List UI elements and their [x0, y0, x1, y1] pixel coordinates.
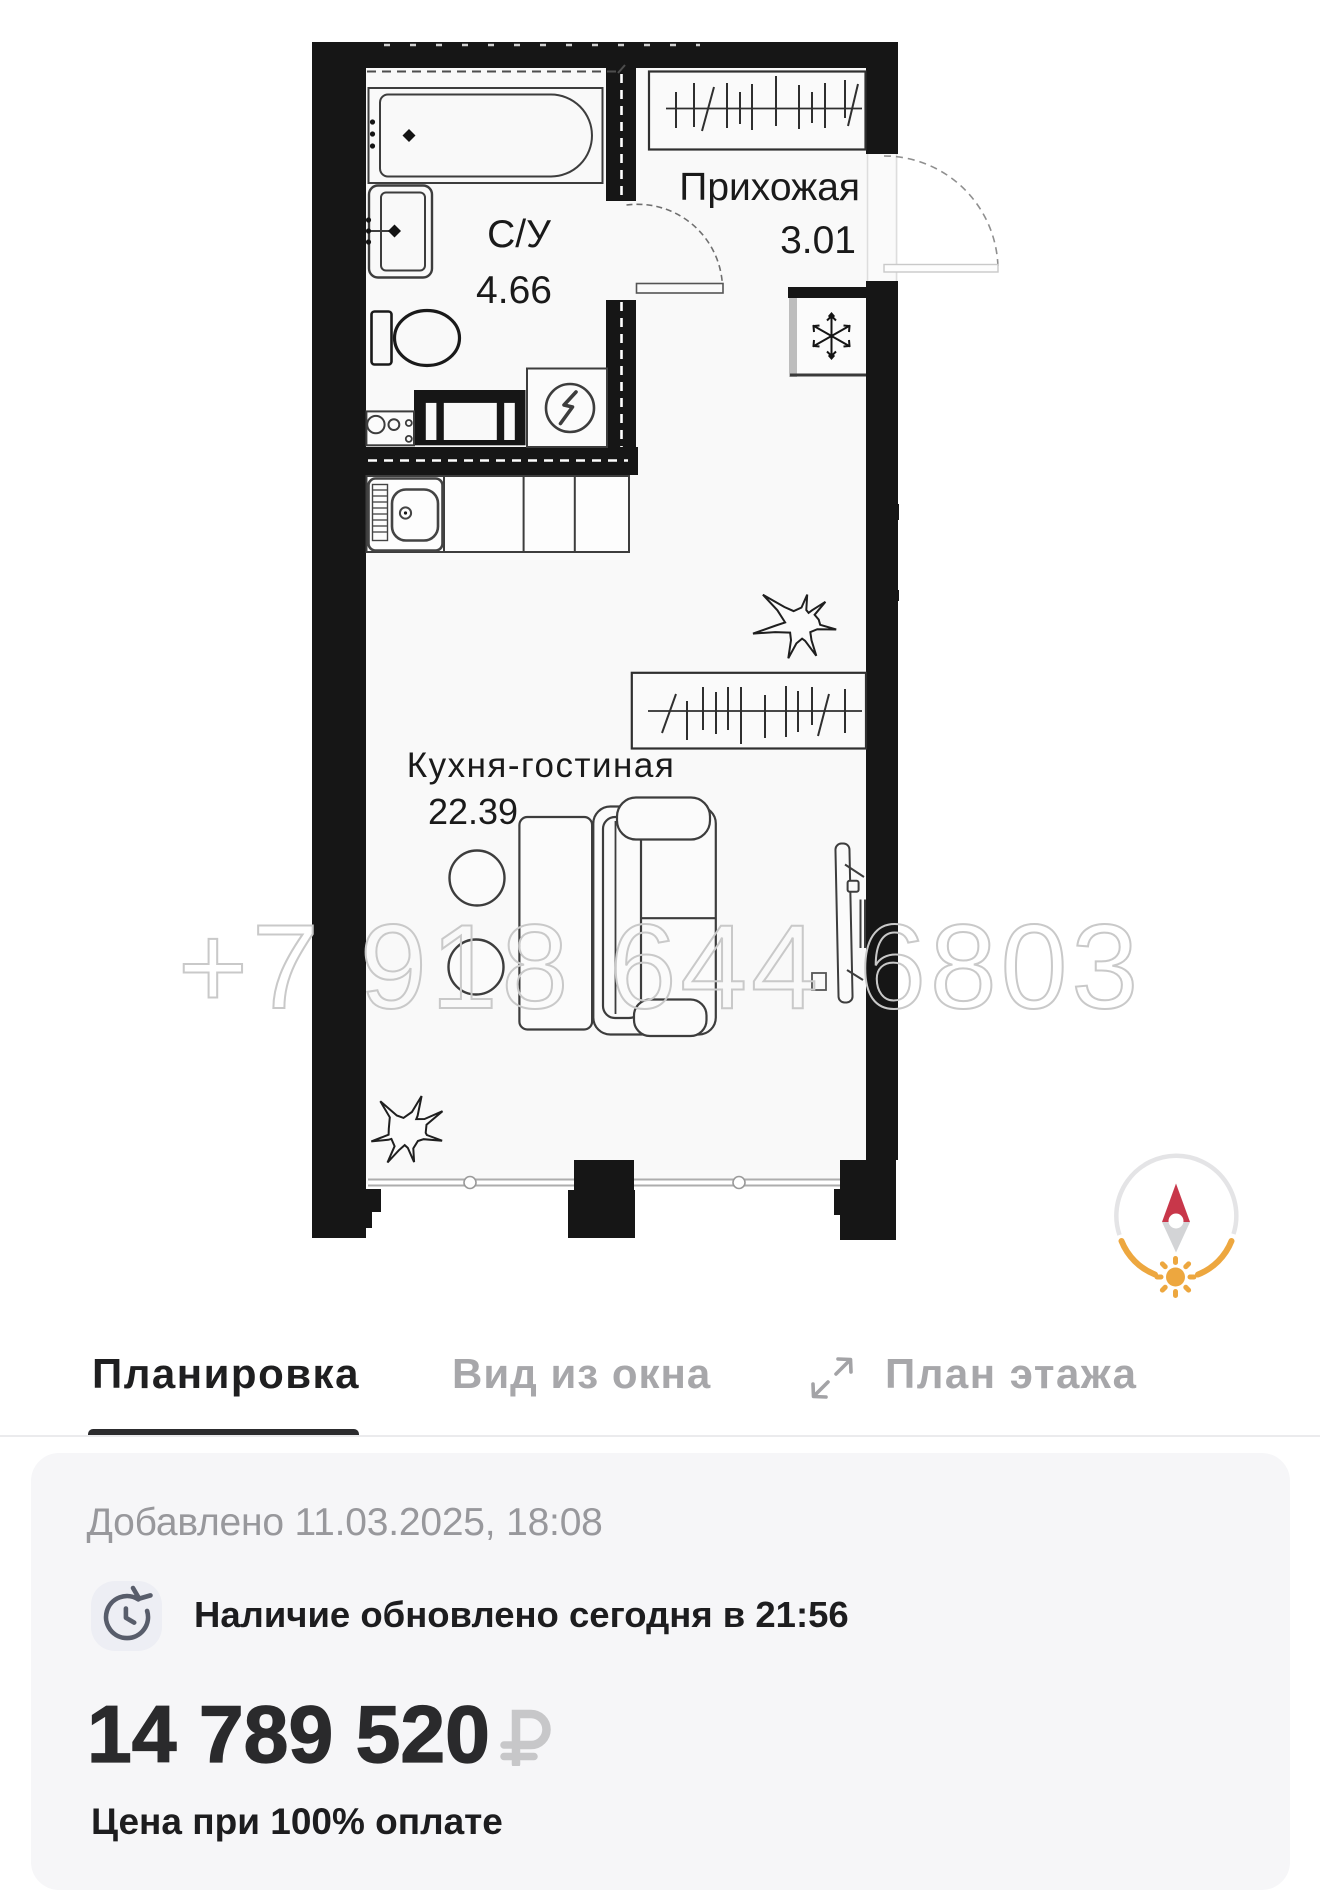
svg-text:Кухня-гостиная: Кухня-гостиная: [407, 746, 676, 785]
svg-text:22.39: 22.39: [428, 791, 518, 832]
svg-text:4.66: 4.66: [476, 269, 552, 312]
svg-text:+7 918 644 6803: +7 918 644 6803: [178, 900, 1142, 1034]
svg-text:С/У: С/У: [487, 213, 551, 256]
svg-text:3.01: 3.01: [780, 219, 856, 262]
svg-text:Прихожая: Прихожая: [679, 166, 860, 209]
